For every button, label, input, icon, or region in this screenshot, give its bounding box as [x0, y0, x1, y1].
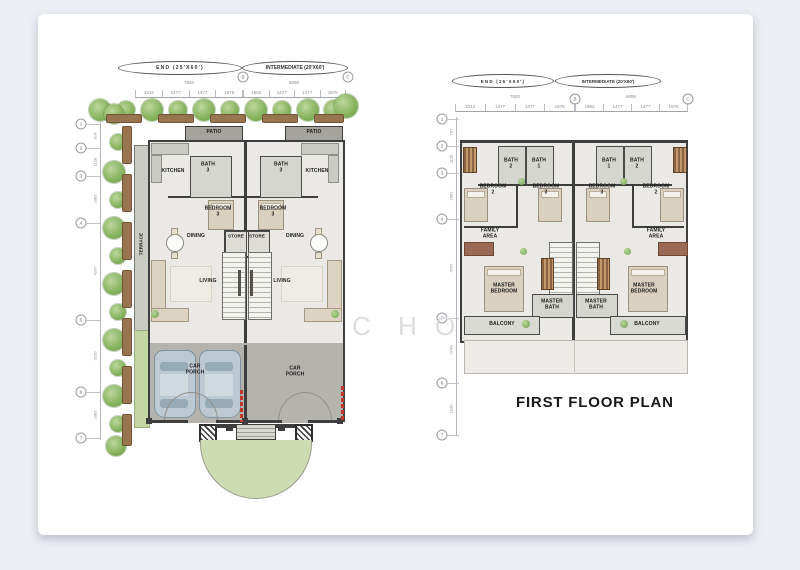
room-label-family-area: FAMILY AREA [647, 228, 665, 240]
kitchen-counter [151, 155, 162, 183]
floorplan-canvas: { "labels": { "end": "END (25'X60')", "i… [0, 0, 800, 570]
ff-left-dim-line [456, 117, 457, 435]
dim-value: 2743 [449, 346, 454, 355]
gf-marker-tick [86, 320, 100, 321]
ff-marker-tick [447, 173, 459, 174]
room-label-bedroom3: BEDROOM 3 [260, 206, 287, 218]
party-wall [244, 345, 247, 422]
car-windshield [205, 362, 233, 371]
hedge [122, 222, 132, 260]
room-label-master-bath: MASTER BATH [585, 299, 607, 311]
wardrobe [463, 147, 477, 173]
room-label-patio: PATIO [306, 130, 321, 136]
room-label-bedroom3: BEDROOM 3 [589, 184, 616, 196]
room-label-car-porch: CAR PORCH [186, 364, 205, 376]
room-label-bedroom3: BEDROOM 3 [205, 206, 232, 218]
dim-value: 1477 [162, 90, 189, 97]
room-label-bath2: BATH 2 [504, 158, 518, 170]
chair [315, 252, 322, 259]
ff-marker-tick [447, 219, 459, 220]
tv-console [238, 270, 241, 296]
room-label-master-bath: MASTER BATH [541, 299, 563, 311]
hedge [262, 114, 298, 123]
gf-grid-marker-1: 1 [76, 119, 87, 130]
room-label-bath3: BATH 3 [274, 162, 288, 174]
indoor-plant [620, 178, 627, 185]
dim-value: 1512 [455, 104, 485, 111]
ff-grid-marker-3: 3 [437, 168, 448, 179]
room-label-bedroom3: BEDROOM 3 [533, 184, 560, 196]
hedge [122, 318, 132, 356]
gf-marker-tick [86, 392, 100, 393]
wall [516, 186, 518, 226]
ff-marker-tick [447, 435, 459, 436]
ff-grid-marker-b: B [570, 94, 581, 105]
ff-unit-tag-intermediate-label: INTERMEDIATE (20'X60') [582, 79, 635, 84]
tv-console [250, 270, 253, 296]
dim-value: 1477 [294, 90, 320, 97]
dim-value: 1930 [449, 405, 454, 414]
dim-value: 4267 [93, 267, 98, 276]
dim-value: 1512 [135, 90, 162, 97]
hedge [158, 114, 194, 123]
ff-dim-row-intermediate: 1562 1477 1477 1575 [575, 104, 688, 112]
gf-unit-tag-intermediate-label: INTERMEDIATE (20'X60') [266, 65, 325, 71]
gf-grid-marker-2: 2 [76, 143, 87, 154]
room-label-kitchen: KITCHEN [306, 169, 329, 175]
ff-unit-tag-intermediate: INTERMEDIATE (20'X60') [555, 74, 661, 88]
chair [171, 228, 178, 235]
ff-grid-marker-c: C [683, 94, 694, 105]
kitchen-counter [301, 143, 339, 155]
ff-marker-tick [447, 383, 459, 384]
ff-dim-total-right: 6096 [626, 94, 636, 99]
dim-value: 1128 [93, 158, 98, 167]
dining-table [166, 234, 184, 252]
first-floor-plan: END (25'X60') INTERMEDIATE (20'X60') 762… [398, 14, 753, 535]
dim-value: 762 [449, 129, 454, 136]
dim-value: 1477 [631, 104, 659, 111]
gf-grid-marker-c: C [343, 72, 354, 83]
driveway-lawn [200, 440, 312, 499]
gf-dim-total-right: 6096 [289, 80, 299, 85]
gf-unit-tag-end: END (25'X60') [118, 61, 242, 75]
entrance-steps [236, 424, 276, 440]
dim-value: 1562 [575, 104, 603, 111]
room-label-store: STORE [228, 233, 244, 238]
dim-value: 2082 [449, 192, 454, 201]
gf-left-dim-line [100, 122, 101, 440]
staircase [222, 252, 246, 320]
plan-title: FIRST FLOOR PLAN [516, 394, 674, 411]
kitchen-counter [151, 143, 189, 155]
dim-value: 1575 [659, 104, 688, 111]
dim-value: 2082 [93, 195, 98, 204]
dim-value: 1477 [515, 104, 545, 111]
entrance-pier [278, 424, 285, 431]
room-label-store: STORE [249, 233, 265, 238]
room-label-living: LIVING [273, 279, 290, 285]
indoor-plant [151, 310, 159, 318]
room-label-bath1: BATH 1 [602, 158, 616, 170]
ff-marker-tick [447, 146, 459, 147]
hedge [122, 126, 132, 164]
ff-dim-row-end: 1512 1477 1477 1878 [455, 104, 575, 112]
ff-marker-tick [447, 119, 459, 120]
watermark-letter: O [435, 311, 455, 342]
gf-marker-tick [86, 176, 100, 177]
room-label-bath3: BATH 3 [201, 162, 215, 174]
ff-grid-marker-4: 4 [437, 214, 448, 225]
gf-grid-marker-6: 6 [76, 387, 87, 398]
gf-grid-marker-b: B [238, 72, 249, 83]
dim-value: 1128 [449, 155, 454, 164]
sofa [151, 260, 166, 312]
dim-value: 2082 [93, 411, 98, 420]
dim-value: 1562 [243, 90, 269, 97]
pillar [146, 418, 152, 424]
hedge [106, 114, 142, 123]
gate-marker [341, 386, 344, 422]
room-label-patio: PATIO [206, 130, 221, 136]
hedge [314, 114, 344, 123]
dim-value: 1477 [485, 104, 515, 111]
indoor-plant [331, 310, 339, 318]
dim-value: 3150 [93, 352, 98, 361]
room-label-dining: DINING [187, 234, 205, 240]
ff-unit-tag-end-label: END (25'X60') [481, 79, 526, 84]
room-label-bedroom2: BEDROOM 2 [643, 184, 670, 196]
dim-value: 1477 [269, 90, 295, 97]
gf-grid-marker-3: 3 [76, 171, 87, 182]
gf-marker-tick [86, 148, 100, 149]
entrance-pier [226, 424, 233, 431]
ff-grid-marker-7: 7 [437, 430, 448, 441]
dim-value: 4267 [449, 264, 454, 273]
gf-marker-tick [86, 124, 100, 125]
room-label-terrace: TERRACE [138, 233, 143, 255]
wall [632, 186, 634, 226]
porch-roof-below [464, 340, 688, 374]
dining-table [310, 234, 328, 252]
wardrobe [597, 258, 610, 290]
ff-unit-tag-end: END (25'X60') [452, 74, 554, 88]
gf-grid-marker-7: 7 [76, 433, 87, 444]
indoor-plant [624, 248, 631, 255]
dim-value: 1477 [189, 90, 216, 97]
room-label-family-area: FAMILY AREA [481, 228, 499, 240]
gf-grid-marker-5: 5 [76, 315, 87, 326]
dim-value: 1477 [603, 104, 631, 111]
balcony-plant [522, 320, 530, 328]
room-label-kitchen: KITCHEN [162, 169, 185, 175]
wardrobe [541, 258, 554, 290]
watermark-letter: H [398, 311, 417, 342]
ff-grid-marker-1: 1 [437, 114, 448, 125]
room-label-bath2: BATH 2 [630, 158, 644, 170]
chair [171, 252, 178, 259]
ff-grid-marker-6: 6 [437, 378, 448, 389]
car-windshield [160, 362, 188, 371]
ff-dim-total-left: 7620 [510, 94, 520, 99]
room-label-balcony: BALCONY [489, 322, 514, 328]
hedge [122, 270, 132, 308]
wardrobe [673, 147, 687, 173]
dim-value: 1878 [544, 104, 575, 111]
car-roof [205, 374, 233, 396]
dim-value: 914 [93, 133, 98, 140]
indoor-plant [520, 248, 527, 255]
room-label-master-bedroom: MASTER BEDROOM [631, 283, 658, 295]
hedge [122, 174, 132, 212]
room-label-dining: DINING [286, 234, 304, 240]
kitchen-counter [328, 155, 339, 183]
gf-dim-total-left: 7620 [184, 80, 194, 85]
room-label-master-bedroom: MASTER BEDROOM [491, 283, 518, 295]
gf-unit-tag-end-label: END (25'X60') [156, 65, 204, 71]
sofa [658, 242, 688, 256]
room-label-balcony: BALCONY [634, 322, 659, 328]
room-label-car-porch: CAR PORCH [286, 366, 305, 378]
roof-center-line [574, 340, 575, 372]
sofa [464, 242, 494, 256]
gate-marker [240, 390, 243, 422]
gate-opening [188, 420, 216, 423]
room-label-living: LIVING [199, 279, 216, 285]
hedge [210, 114, 246, 123]
gf-marker-tick [86, 223, 100, 224]
balcony-plant [620, 320, 628, 328]
gf-dim-row-end: 1512 1477 1477 1878 [135, 90, 243, 98]
watermark-letter: C [352, 311, 371, 342]
room-label-bedroom2: BEDROOM 2 [480, 184, 507, 196]
sofa [327, 260, 342, 312]
indoor-plant [518, 178, 525, 185]
gf-dim-row-intermediate: 1562 1477 1477 1575 [243, 90, 346, 98]
room-label-bath1: BATH 1 [532, 158, 546, 170]
gf-unit-tag-intermediate: INTERMEDIATE (20'X60') [242, 61, 348, 75]
ff-grid-marker-2: 2 [437, 141, 448, 152]
gf-grid-marker-4: 4 [76, 218, 87, 229]
gf-marker-tick [86, 438, 100, 439]
hedge [122, 366, 132, 404]
ground-floor-plan: END (25'X60') INTERMEDIATE (20'X60') 762… [38, 14, 398, 535]
hedge [122, 414, 132, 446]
gate-opening [282, 420, 308, 423]
chair [315, 228, 322, 235]
dim-value: 1878 [215, 90, 243, 97]
drawing-sheet: END (25'X60') INTERMEDIATE (20'X60') 762… [38, 14, 753, 535]
